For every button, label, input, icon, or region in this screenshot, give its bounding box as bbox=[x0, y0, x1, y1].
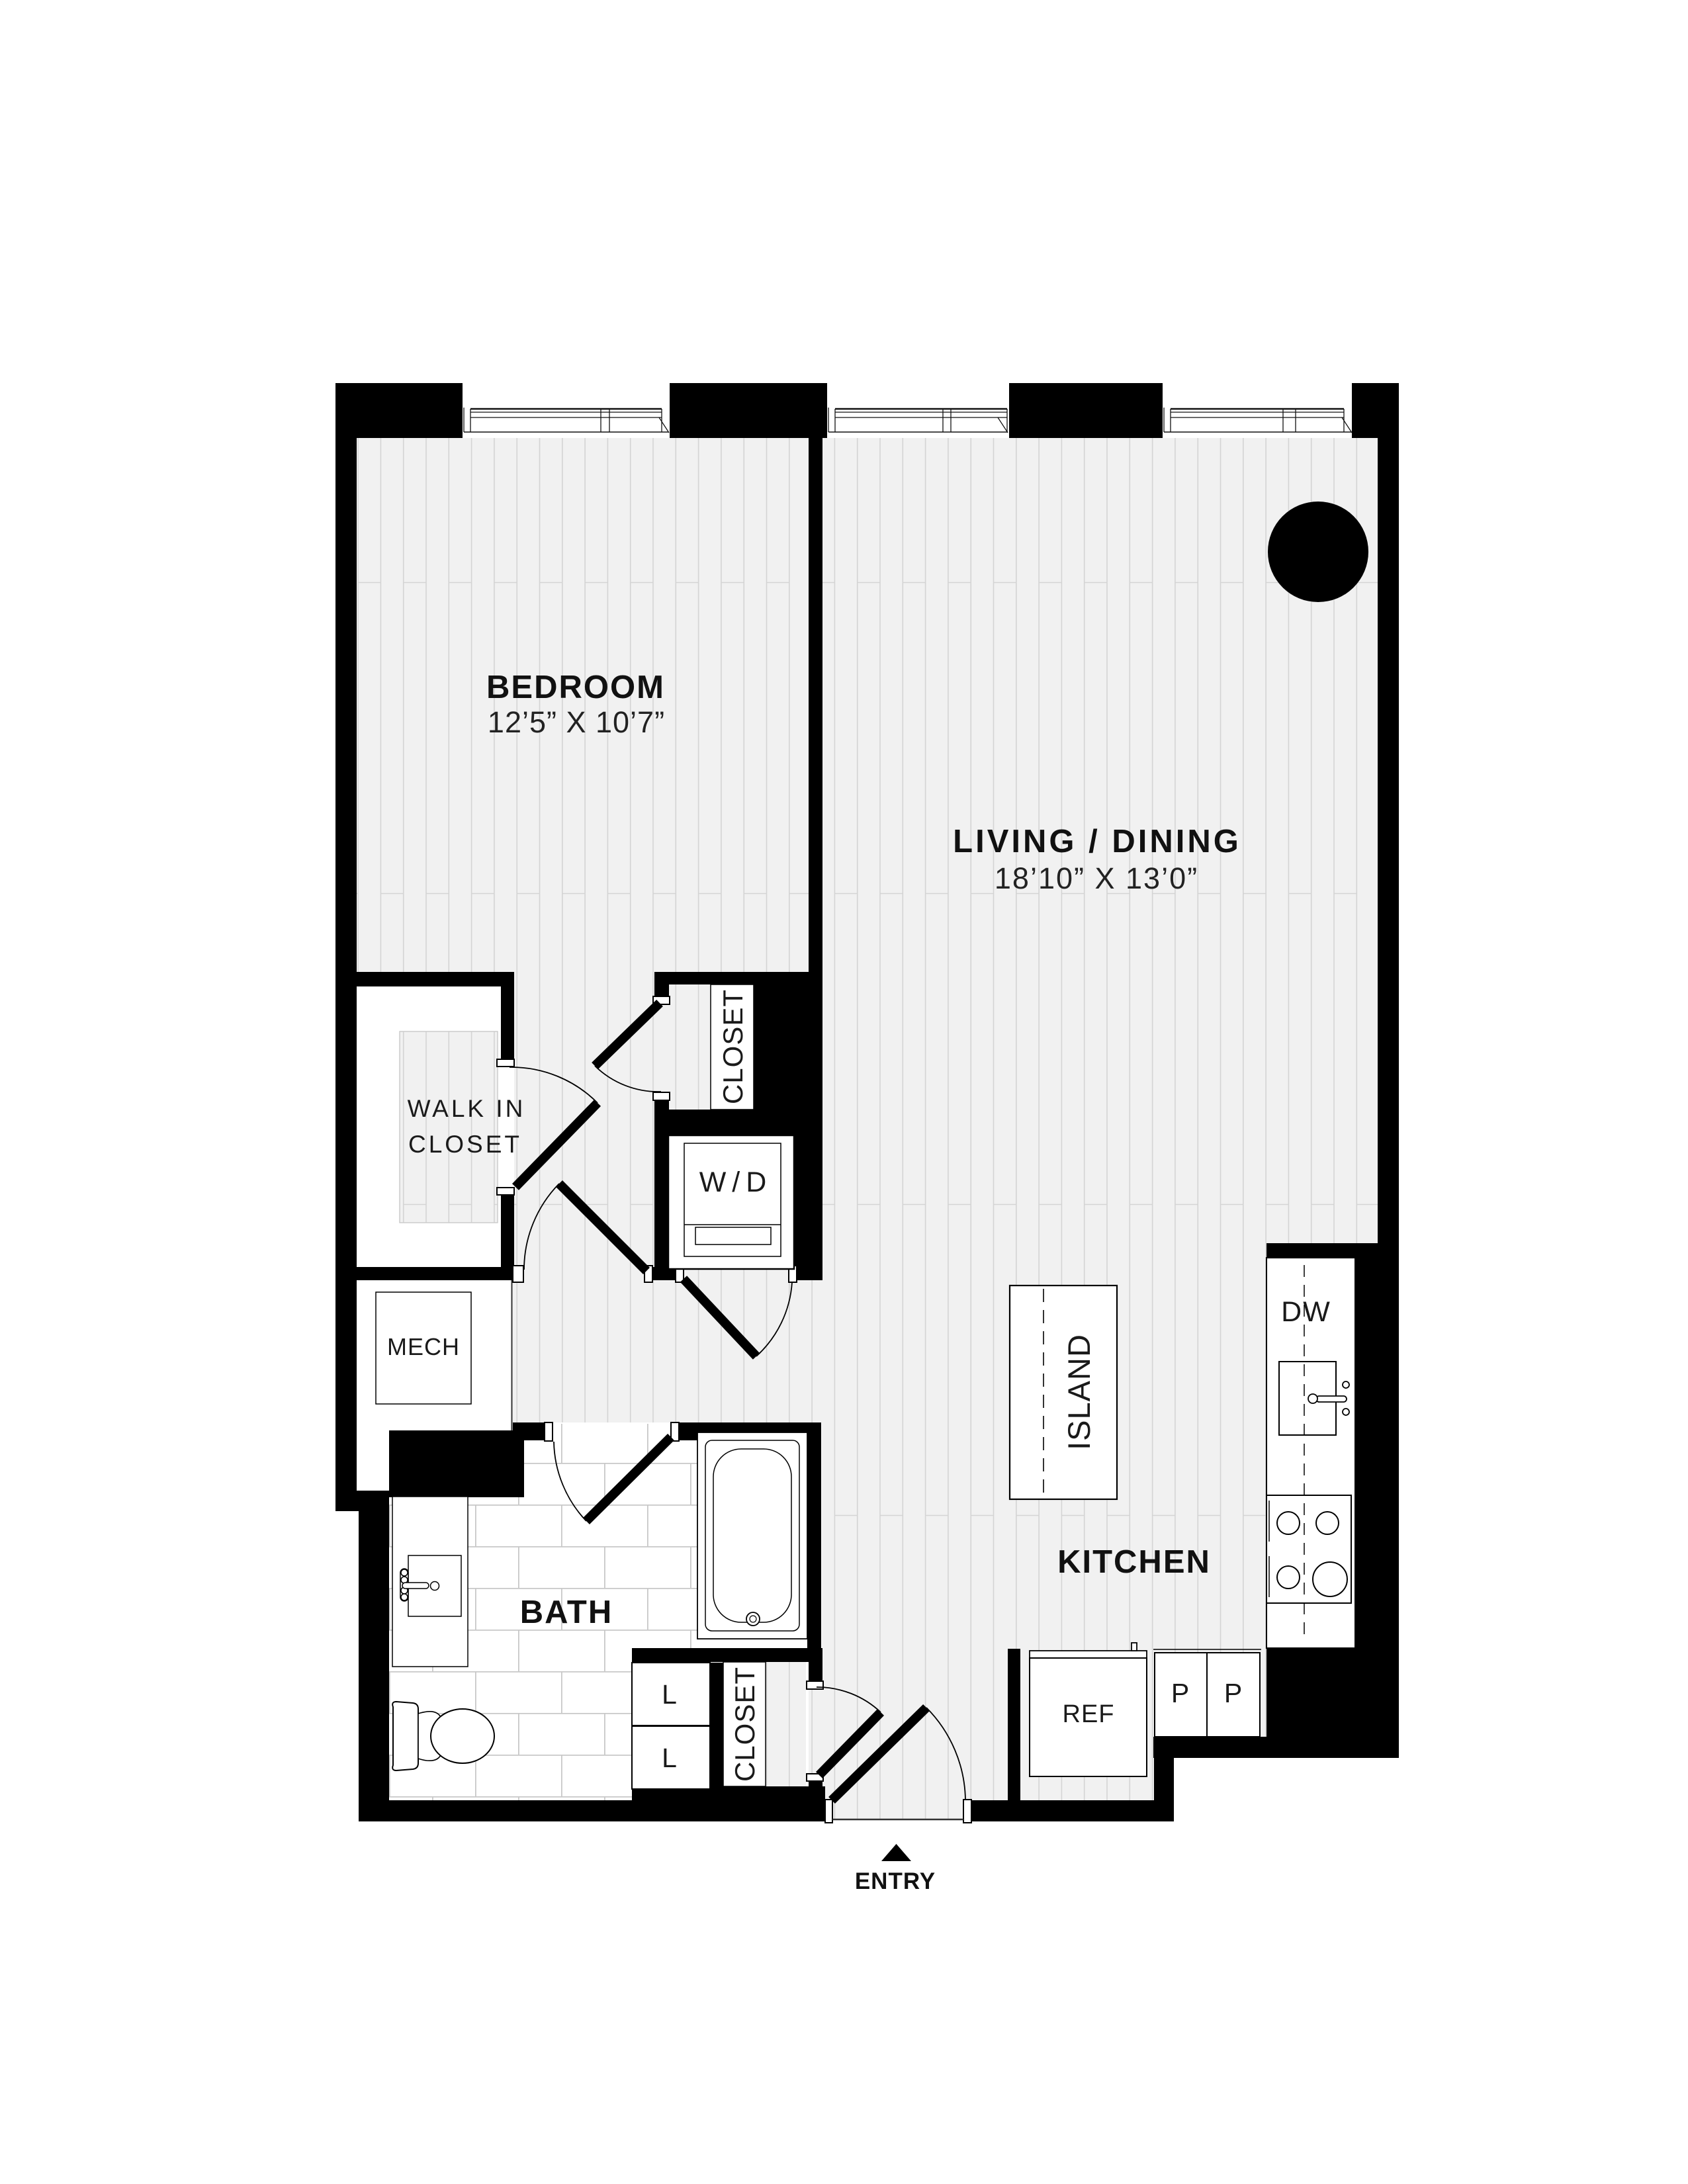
svg-text:18’10” X 13’0”: 18’10” X 13’0” bbox=[995, 861, 1198, 895]
svg-text:BATH: BATH bbox=[520, 1594, 613, 1630]
svg-text:DW: DW bbox=[1281, 1296, 1331, 1328]
svg-text:LIVING / DINING: LIVING / DINING bbox=[953, 824, 1241, 859]
svg-text:L: L bbox=[662, 1743, 678, 1773]
svg-text:ENTRY: ENTRY bbox=[855, 1868, 936, 1894]
svg-text:MECH: MECH bbox=[387, 1333, 460, 1360]
svg-text:ISLAND: ISLAND bbox=[1061, 1334, 1096, 1450]
svg-text:REF: REF bbox=[1063, 1700, 1115, 1728]
svg-text:CLOSET: CLOSET bbox=[729, 1667, 760, 1782]
svg-text:P: P bbox=[1224, 1678, 1243, 1708]
svg-text:WALK IN: WALK IN bbox=[408, 1095, 526, 1122]
svg-text:CLOSET: CLOSET bbox=[717, 989, 748, 1104]
svg-text:BEDROOM: BEDROOM bbox=[486, 670, 665, 705]
svg-text:KITCHEN: KITCHEN bbox=[1057, 1544, 1211, 1580]
svg-text:W/D: W/D bbox=[699, 1166, 773, 1198]
svg-text:12’5” X 10’7”: 12’5” X 10’7” bbox=[488, 705, 665, 739]
svg-text:L: L bbox=[662, 1679, 678, 1710]
svg-text:CLOSET: CLOSET bbox=[408, 1131, 522, 1158]
svg-text:P: P bbox=[1171, 1678, 1190, 1708]
